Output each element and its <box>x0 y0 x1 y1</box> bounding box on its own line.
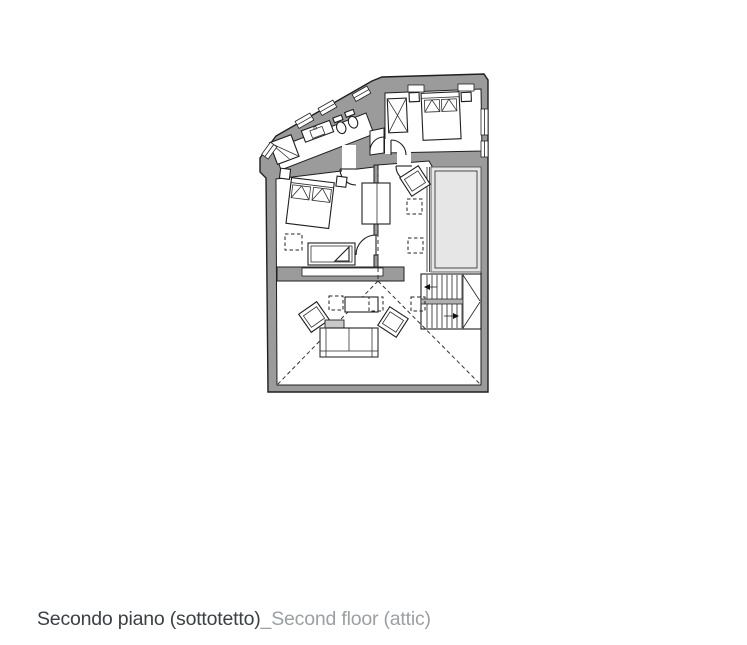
window-icon <box>458 84 474 91</box>
window-icon <box>408 85 424 92</box>
nightstand-icon <box>336 176 347 187</box>
terrace-floor <box>431 167 481 272</box>
partition-stub-2 <box>374 224 378 235</box>
nightstand-icon <box>409 92 419 101</box>
coffee-table-icon <box>345 297 378 312</box>
caption: Secondo piano (sottotetto)_Second floor … <box>37 608 431 631</box>
stair-mid-landing <box>422 299 463 304</box>
nightstand-icon <box>461 92 471 101</box>
page: Secondo piano (sottotetto)_Second floor … <box>0 0 747 645</box>
low-wall-shelf <box>302 268 383 276</box>
partition-stub-1 <box>374 165 378 183</box>
room-hall <box>370 128 384 155</box>
partition-stub-3 <box>374 255 378 267</box>
terrace <box>427 167 481 272</box>
staircase <box>421 274 481 329</box>
caption-english: _Second floor (attic) <box>261 608 431 630</box>
nightstand-icon <box>279 168 290 179</box>
floor-plan-drawing <box>0 0 747 645</box>
caption-italian: Secondo piano (sottotetto) <box>37 608 261 630</box>
wardrobe-icon <box>362 183 390 224</box>
